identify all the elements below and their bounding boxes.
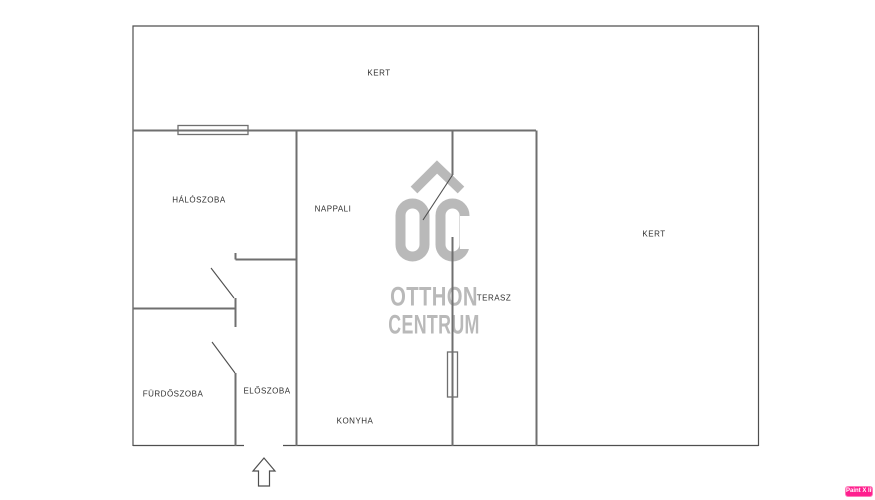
logo-monogram-oc: [401, 167, 475, 257]
logo-roof-chevron-icon: [414, 167, 461, 190]
room-label-furdoszoba: FÜRDŐSZOBA: [143, 390, 204, 399]
interior-walls: [133, 131, 537, 447]
entrance-arrow-icon: [253, 458, 275, 486]
logo-letter-o-shape: [401, 204, 425, 257]
windows: [178, 126, 458, 398]
room-label-terasz: TERASZ: [477, 294, 512, 303]
logo-letter-c-opening: [460, 216, 474, 249]
haloszoba-door-leaf: [211, 268, 234, 298]
room-label-konyha: KONYHA: [337, 417, 374, 426]
room-label-kert-right: KERT: [642, 230, 665, 239]
room-label-nappali: NAPPALI: [315, 205, 352, 214]
room-label-haloszoba: HÁLÓSZOBA: [172, 196, 225, 205]
furdoszoba-door-leaf: [212, 342, 235, 373]
floor-plan-canvas: OTTHON CENTRUM: [0, 0, 875, 500]
room-label-kert-top: KERT: [367, 69, 390, 78]
floor-plan-drawing: [0, 0, 875, 500]
room-label-eloszoba: ELŐSZOBA: [243, 387, 290, 396]
paint-app-watermark-badge: Paint X lite: [845, 486, 873, 497]
